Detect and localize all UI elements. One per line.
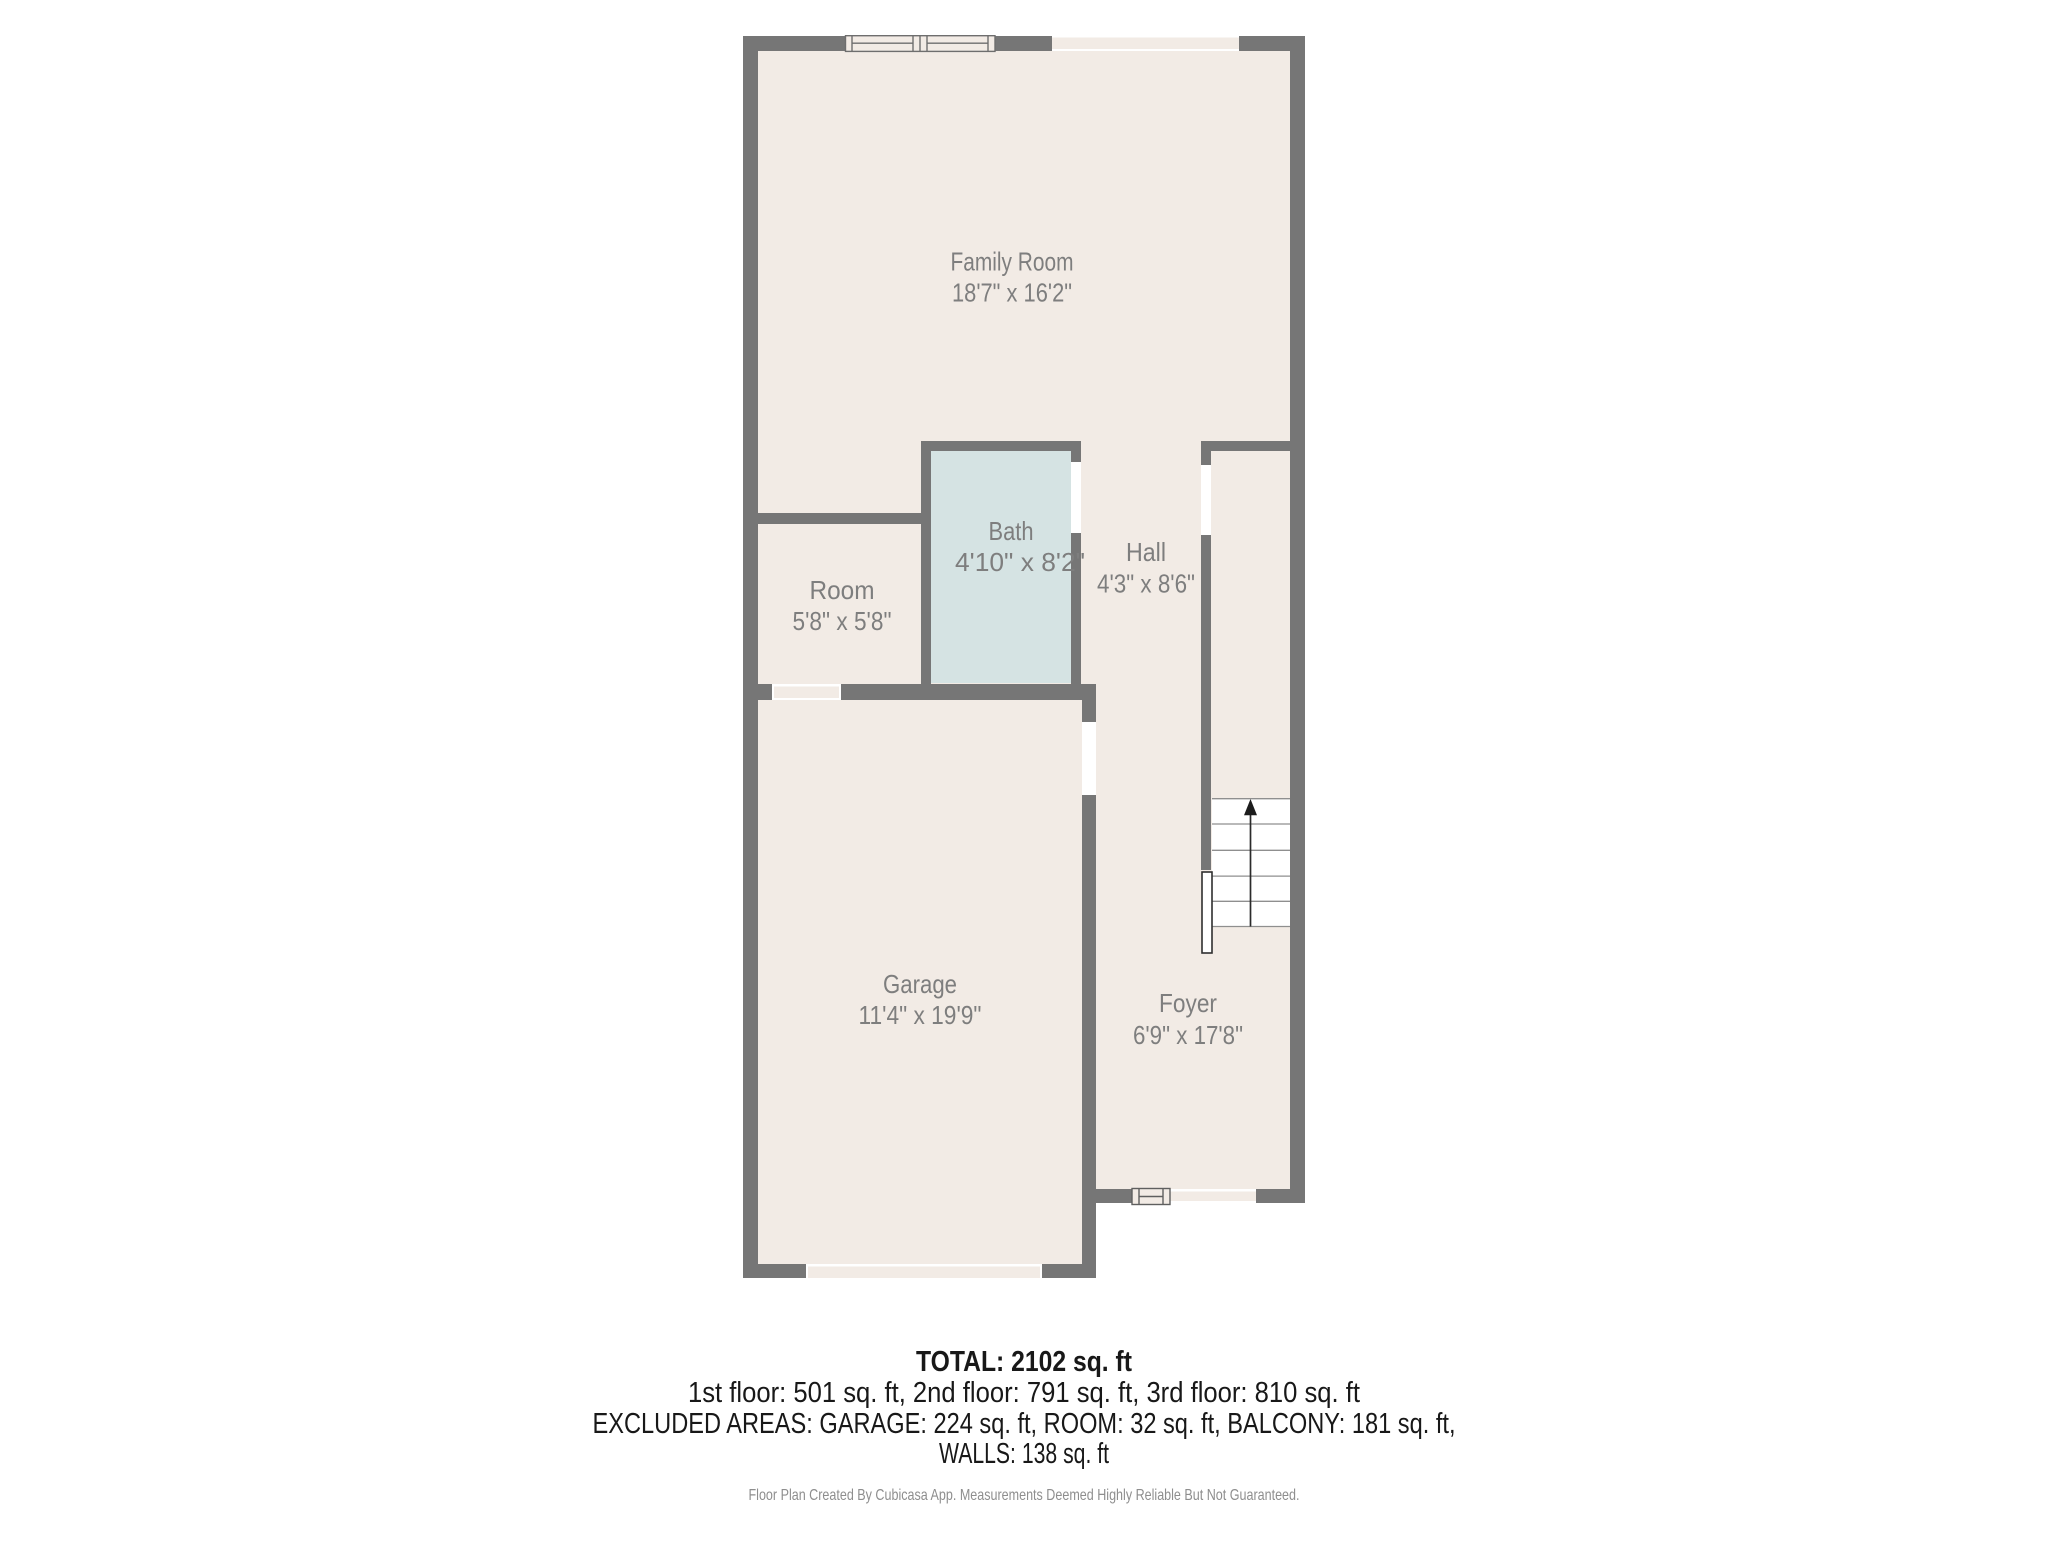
- svg-text:5'8" x 5'8": 5'8" x 5'8": [793, 606, 892, 636]
- svg-text:11'4" x 19'9": 11'4" x 19'9": [859, 1000, 982, 1030]
- svg-text:6'9" x 17'8": 6'9" x 17'8": [1133, 1020, 1243, 1050]
- svg-text:TOTAL: 2102 sq. ft: TOTAL: 2102 sq. ft: [916, 1346, 1132, 1378]
- svg-text:EXCLUDED AREAS: GARAGE: 224 sq: EXCLUDED AREAS: GARAGE: 224 sq. ft, ROOM…: [593, 1408, 1456, 1440]
- svg-text:WALLS: 138 sq. ft: WALLS: 138 sq. ft: [939, 1438, 1109, 1470]
- svg-text:1st floor: 501 sq. ft, 2nd flo: 1st floor: 501 sq. ft, 2nd floor: 791 sq…: [688, 1377, 1360, 1409]
- svg-text:Bath: Bath: [989, 516, 1034, 546]
- svg-text:Floor Plan Created By Cubicasa: Floor Plan Created By Cubicasa App. Meas…: [749, 1487, 1300, 1504]
- svg-text:Room: Room: [810, 575, 875, 605]
- svg-text:Foyer: Foyer: [1159, 988, 1217, 1018]
- svg-text:Hall: Hall: [1126, 537, 1166, 567]
- svg-text:18'7" x 16'2": 18'7" x 16'2": [952, 278, 1072, 308]
- svg-text:4'10" x 8'2": 4'10" x 8'2": [955, 547, 1085, 577]
- svg-text:Family Room: Family Room: [951, 247, 1074, 277]
- svg-text:Garage: Garage: [883, 969, 957, 999]
- svg-text:4'3" x 8'6": 4'3" x 8'6": [1097, 569, 1195, 599]
